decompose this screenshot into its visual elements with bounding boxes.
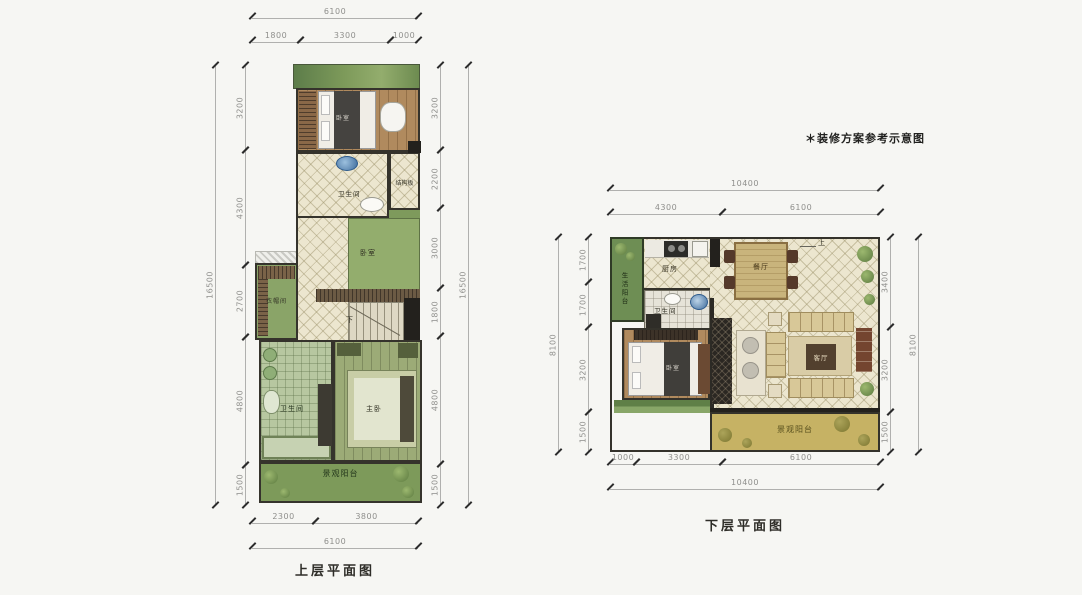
stove-burner-1 [668,245,675,252]
corner-table-1 [768,312,782,326]
dim-lower-left-seg2: 3200 [588,327,589,412]
bedroom-hanger-rail [634,330,698,340]
wall-kitchen-dining [710,239,720,267]
lower-pillow-2 [632,372,641,389]
stairs-up-line [800,246,816,247]
room-label-bathroom-lower: 卫生间 [280,404,304,414]
dim-upper-right-seg1: 2200 [440,150,441,208]
dim-lower-top-seg1: 6100 [722,214,880,215]
upper-bedroom-mid [348,218,420,292]
room-label-dining: 餐厅 [734,262,788,272]
dim-lower-right-total: 8100 [918,237,919,452]
room-label-living: 客厅 [806,352,836,362]
room-label-service-balcony: 生活阳台 [619,272,629,306]
living-cabinet [856,328,872,372]
dim-lower-top-seg0: 4300 [610,214,722,215]
upper-plan-caption: 上层平面图 [252,560,418,579]
living-lattice-screen [712,318,732,404]
dim-lower-left-seg3: 1500 [588,412,589,452]
room-label-master: 主卧 [366,404,382,414]
room-label-cloakroom: 衣帽间 [266,296,287,305]
dim-lower-right-seg0: 3400 [890,237,891,327]
lower-balcony-plant-4 [858,434,870,446]
bath-toilet-lower [664,293,681,305]
dim-upper-bottom-seg0: 2300 [252,523,315,524]
upper-roof-planter [293,64,420,89]
service-balcony-plant-2 [626,252,635,261]
dim-upper-right-seg2: 3000 [440,208,441,288]
lowerbath-sink-2 [263,366,277,380]
dining-chair-3 [787,250,798,263]
room-label-view-balcony-lower: 景观阳台 [710,424,880,435]
sofa-top [788,312,854,332]
upper-stairs [348,302,404,345]
room-label-stairs-up: 上 [818,238,826,248]
living-plant-4 [860,382,874,396]
dim-lower-left-seg1: 1700 [588,282,589,327]
lower-plan-caption: 下层平面图 [610,515,880,534]
sofa-left [766,332,786,378]
dim-upper-left-seg1: 4300 [245,150,246,265]
bedroom-wardrobe [698,344,710,394]
room-label-bathroom-top: 卫生间 [338,188,361,198]
dining-chair-4 [787,276,798,289]
balcony-plant-3 [402,486,414,498]
room-label-bedroom-top: 卧室 [336,113,350,122]
dim-upper-right-seg5: 1500 [440,464,441,505]
master-tv-stand [318,384,332,446]
dining-chair-2 [724,276,735,289]
balcony-plant-4 [280,488,290,498]
dim-upper-top-seg1: 3300 [300,42,390,43]
dim-upper-left-total: 16500 [215,65,216,505]
dim-upper-left-seg4: 1500 [245,465,246,505]
sofa-bottom [788,378,854,398]
dim-upper-right-total: 16500 [468,65,469,505]
upper-bath-sink [336,156,358,171]
living-plant-3 [864,294,875,305]
floorplan-image: ＊装修方案参考示意图 6100 1800 3300 1000 16500 320… [0,0,1082,595]
dim-upper-left-seg2: 2700 [245,265,246,337]
dim-lower-right-seg1: 3200 [890,327,891,412]
dim-lower-left-seg0: 1700 [588,237,589,282]
master-dresser-2 [398,343,418,358]
side-chair-2 [742,362,759,379]
upper-pillow-2 [321,121,330,141]
dim-upper-right-seg0: 3200 [440,65,441,150]
dim-upper-left-seg0: 3200 [245,65,246,150]
dim-upper-top-seg2: 1000 [390,42,418,43]
corner-table-2 [768,384,782,398]
master-dresser-1 [337,343,361,356]
side-chair-1 [742,337,759,354]
upper-wardrobe [299,91,316,149]
dim-upper-top-seg0: 1800 [252,42,300,43]
garden-strip [614,400,710,413]
living-plant-2 [861,270,874,283]
dim-upper-left-seg3: 4800 [245,337,246,465]
living-plant-1 [857,246,873,262]
lowerbath-sink-1 [263,348,277,362]
upper-ensuite-fixture [380,102,406,132]
dim-lower-bottom-seg1: 3300 [636,464,722,465]
dim-lower-bottom-total: 10400 [610,489,880,490]
lowerbath-toilet [263,390,280,414]
dim-lower-top-total: 10400 [610,190,880,191]
dim-lower-bottom-seg2: 6100 [722,464,880,465]
kitchen-sink [692,241,708,257]
lower-pillow-1 [632,346,641,363]
service-balcony-plant-1 [615,243,627,255]
dim-upper-bottom-seg1: 3800 [315,523,418,524]
room-label-bedroom-lower: 卧室 [666,363,680,372]
lower-balcony-plant-2 [742,438,752,448]
stove-burner-2 [678,245,685,252]
upper-pillow-1 [321,95,330,115]
dim-upper-bottom-total: 6100 [252,548,418,549]
room-label-bedroom-mid: 卧室 [360,248,376,258]
cloak-rail-left [258,279,268,336]
wall-stairs-upper [404,298,420,345]
bath-sink-lower [690,294,708,310]
upper-bath-toilet [360,197,384,212]
room-label-stairs-down: 下 [346,315,354,325]
decor-note: ＊装修方案参考示意图 [805,130,925,146]
upper-corridor [296,218,348,345]
room-label-view-balcony-upper: 景观阳台 [259,468,422,479]
room-label-kitchen: 厨房 [662,264,678,274]
wall-stub-upper [408,141,421,153]
room-label-structure-slab: 结构板 [391,178,418,187]
dim-upper-right-seg4: 4800 [440,336,441,464]
dim-lower-right-seg2: 1500 [890,412,891,452]
master-bed-headboard [400,376,414,442]
dim-upper-top-total: 6100 [252,18,418,19]
dim-lower-left-total: 8100 [558,237,559,452]
dim-upper-right-seg3: 1800 [440,288,441,336]
room-label-bathroom-lowerplan: 卫生间 [654,305,677,315]
cloak-rail-top [258,266,295,279]
